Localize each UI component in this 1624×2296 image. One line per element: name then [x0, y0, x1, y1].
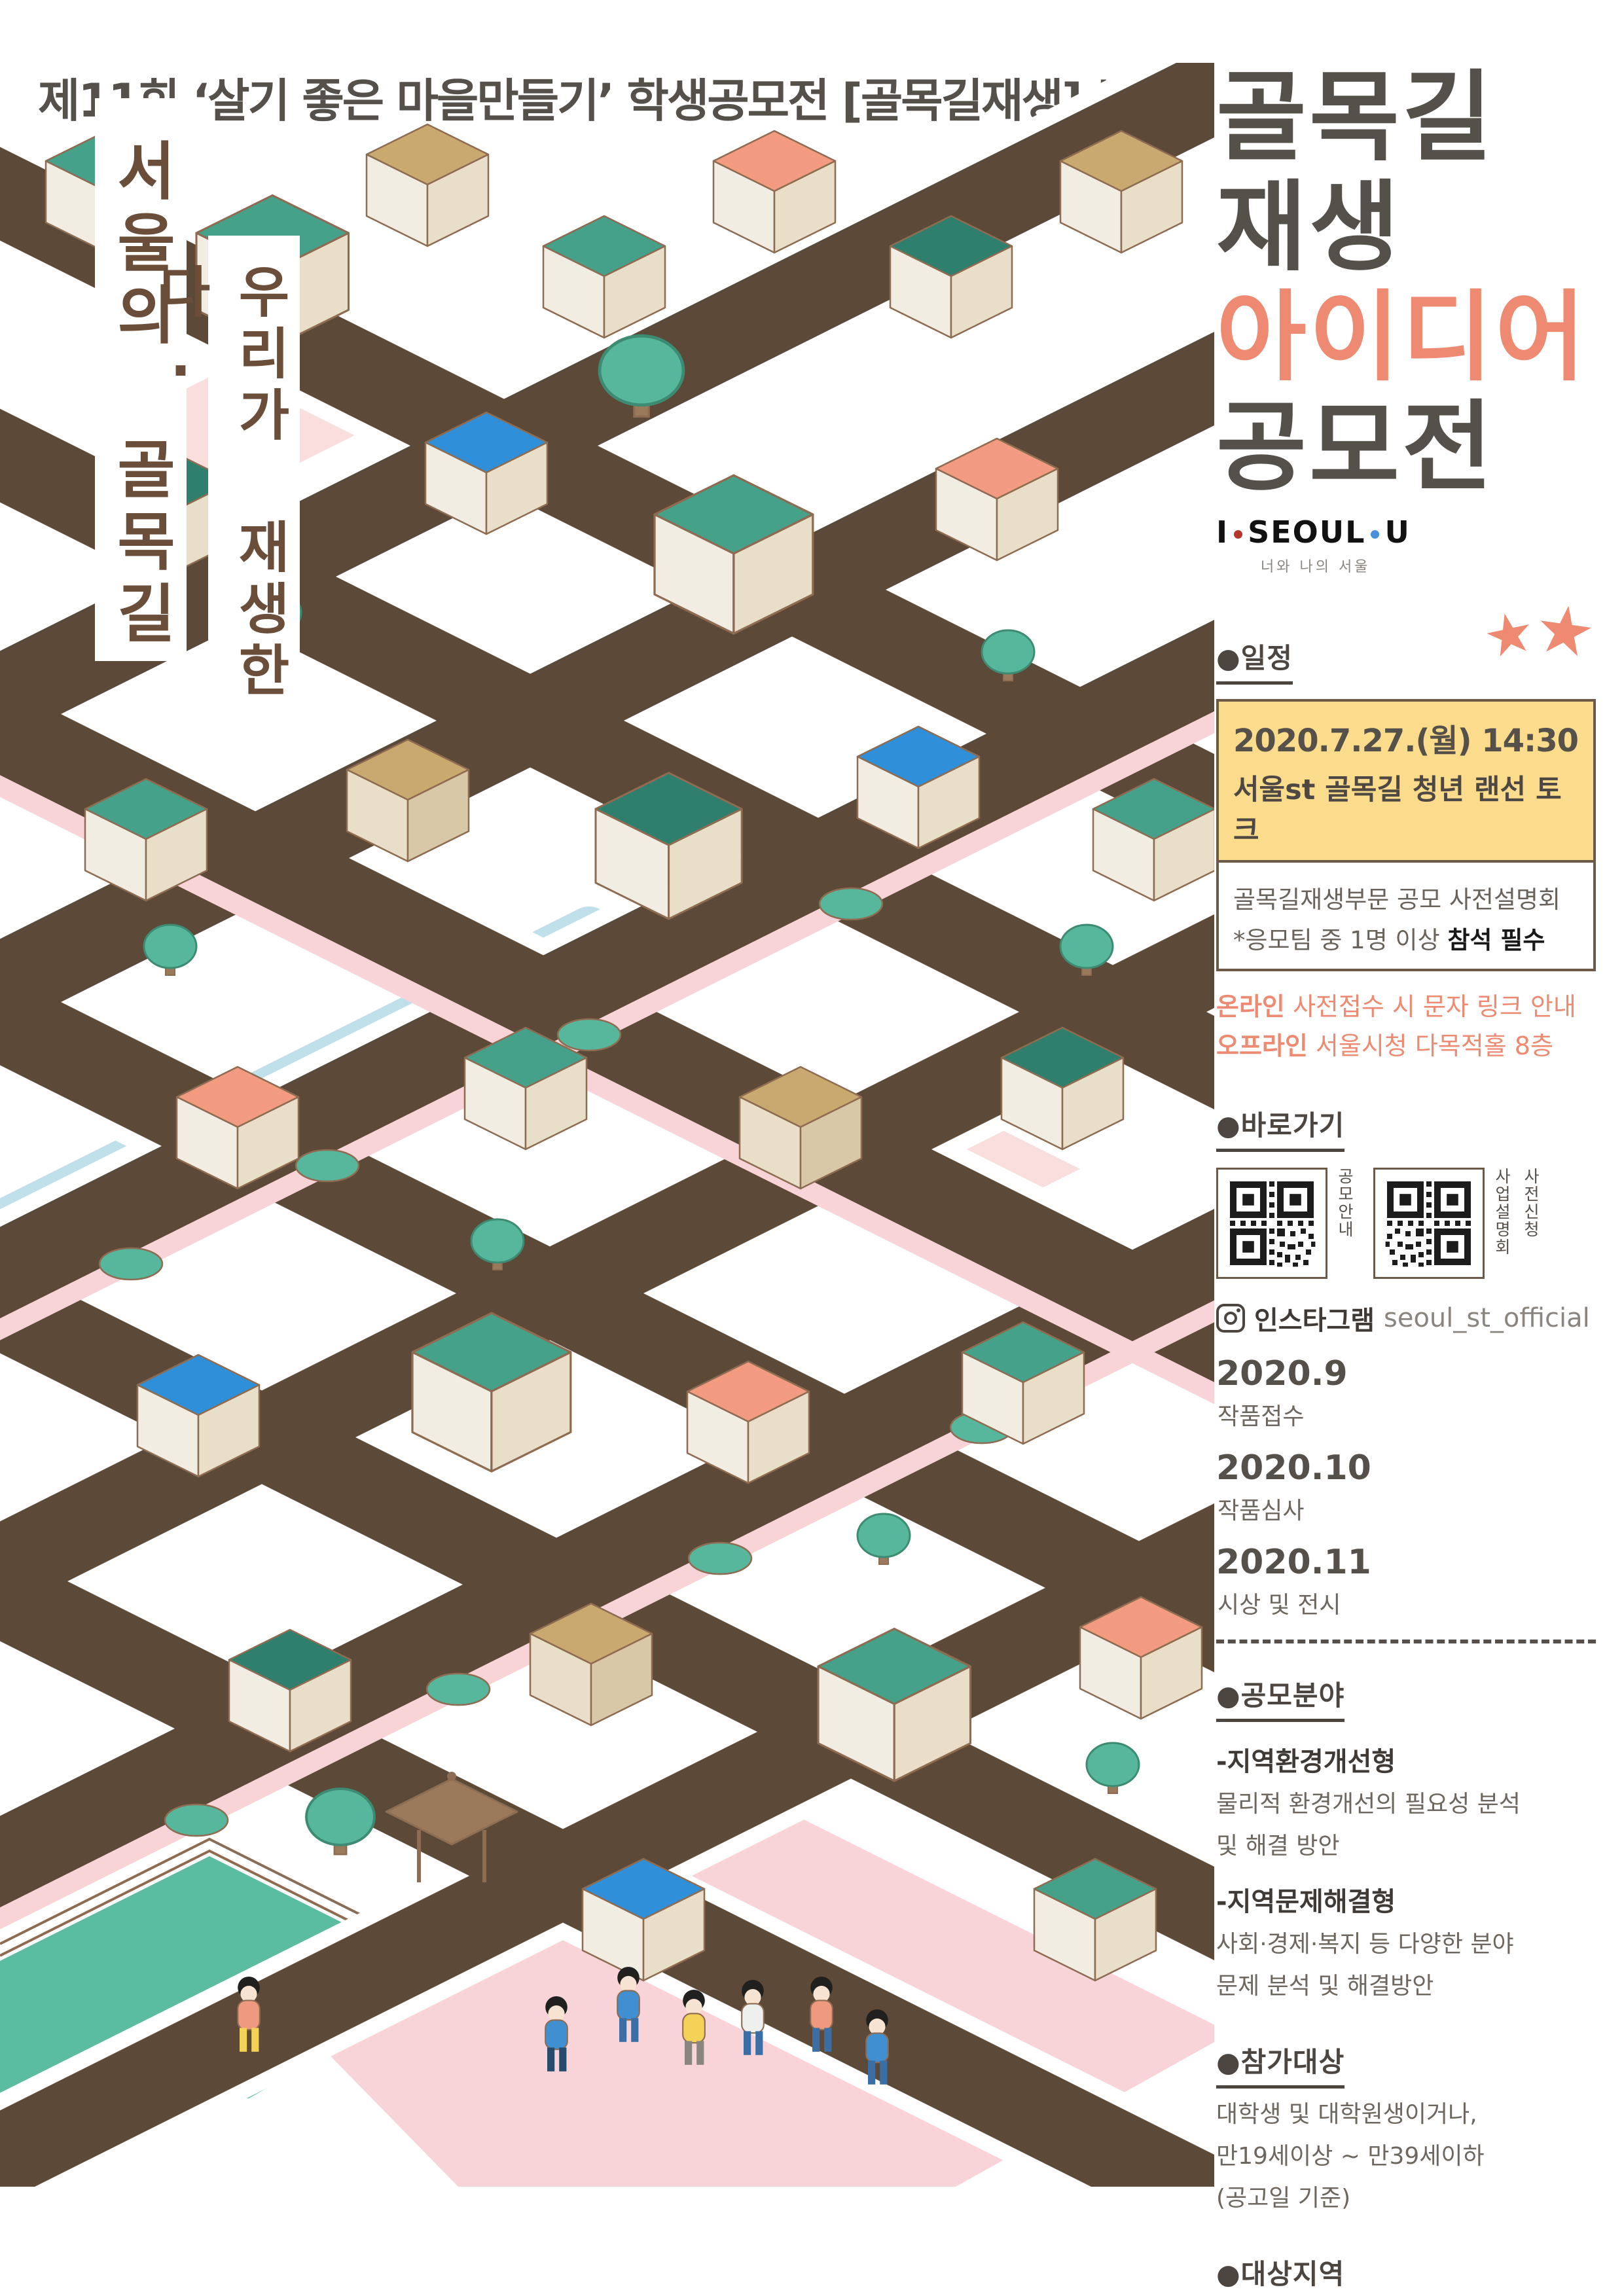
- category-1-title: -지역환경개선형: [1216, 1740, 1596, 1778]
- instagram-icon: [1216, 1304, 1245, 1333]
- timeline-item: 2020.11 시상 및 전시: [1216, 1543, 1596, 1620]
- instagram-row[interactable]: 인스타그램 seoul_st_official: [1216, 1299, 1596, 1337]
- schedule-access-info: 온라인 사전접수 시 문자 링크 안내 오프라인 서울시청 다목적홀 8층: [1216, 987, 1596, 1066]
- schedule-date: 2020.7.27.(월) 14:30: [1233, 715, 1579, 761]
- timeline-label: 시상 및 전시: [1218, 1586, 1596, 1620]
- banner-secondary-text: 우리가 재생한다.: [208, 263, 300, 779]
- qr-code-announcement: [1216, 1168, 1327, 1279]
- note-prefix: *응모팀 중 1명 이상: [1233, 926, 1447, 954]
- timeline-label: 작품심사: [1218, 1492, 1596, 1526]
- qr-label-briefing-1: 사업설명회: [1490, 1168, 1513, 1282]
- logo-red-dot-icon: [1234, 530, 1242, 539]
- title-line-4: 공모전: [1216, 393, 1596, 503]
- schedule-note-line: 골목길재생부문 공모 사전설명회: [1233, 880, 1579, 915]
- vertical-banner-secondary: 우리가 재생한다.: [208, 236, 300, 779]
- timeline-date: 2020.10: [1216, 1448, 1596, 1488]
- schedule-heading: ●일정: [1216, 636, 1293, 685]
- banner-primary-text: 서울의 골목길: [95, 138, 187, 653]
- section-schedule: ●일정 ★★ 2020.7.27.(월) 14:30 서울st 골목길 청년 랜…: [1216, 636, 1596, 1066]
- category-1-desc: 물리적 환경개선의 필요성 분석: [1216, 1789, 1596, 1820]
- timeline-date: 2020.11: [1216, 1543, 1596, 1582]
- section-eligibility: ●참가대상 대학생 및 대학원생이거나, 만19세이상 ~ 만39세이하 (공고…: [1216, 2040, 1596, 2214]
- timeline-label: 작품접수: [1218, 1397, 1596, 1431]
- offline-label: 오프라인: [1216, 1031, 1308, 1060]
- logo-i: I: [1216, 514, 1229, 550]
- eligibility-line: 대학생 및 대학원생이거나,: [1216, 2099, 1596, 2130]
- timeline-item: 2020.9 작품접수: [1216, 1354, 1596, 1431]
- offline-text: 서울시청 다목적홀 8층: [1308, 1031, 1553, 1060]
- qr-label-announcement: 공모안내: [1333, 1168, 1356, 1282]
- online-info: 온라인 사전접수 시 문자 링크 안내: [1216, 987, 1596, 1026]
- note-bold: 참석 필수: [1447, 926, 1545, 954]
- title-line-2: 재생: [1216, 173, 1596, 283]
- categories-heading: ●공모분야: [1216, 1674, 1344, 1722]
- category-2-desc: 문제 분석 및 해결방안: [1216, 1971, 1596, 2002]
- poster: 제11회 ‘살기 좋은 마을만들기’ 학생공모전 [골목길재생] 부문: [0, 0, 1624, 2296]
- qr-label-briefing-2: 사전신청: [1519, 1168, 1542, 1282]
- timeline-date: 2020.9: [1216, 1354, 1596, 1393]
- schedule-note: 골목길재생부문 공모 사전설명회 *응모팀 중 1명 이상 참석 필수: [1219, 860, 1593, 969]
- qr-item-briefing: 사업설명회 사전신청: [1373, 1168, 1542, 1282]
- logo-blue-dot-icon: [1371, 530, 1379, 539]
- category-2-desc: 사회·경제·복지 등 다양한 분야: [1216, 1929, 1596, 1960]
- qr-row: 공모안내 사업설명회 사전신청: [1216, 1168, 1596, 1282]
- section-categories: ●공모분야 -지역환경개선형 물리적 환경개선의 필요성 분석 및 해결 방안 …: [1216, 1674, 1596, 2002]
- instagram-handle: seoul_st_official: [1384, 1303, 1590, 1333]
- section-target-area: ●대상지역 서울 골목길재생 지역(25개소): [1216, 2252, 1596, 2296]
- village-illustration: 서울의 골목길 우리가 재생한다.: [0, 63, 1214, 2187]
- eligibility-heading: ●참가대상: [1216, 2040, 1344, 2089]
- qr-code-briefing: [1373, 1168, 1485, 1279]
- logo-row: I SEOUL U: [1216, 514, 1596, 550]
- sidebar: 골목길 재생 아이디어 공모전 I SEOUL U 너와 나의 서울 ●일정 ★…: [1216, 63, 1596, 2296]
- target-area-heading: ●대상지역: [1216, 2252, 1344, 2296]
- schedule-event-title: 서울st 골목길 청년 랜선 토크: [1233, 767, 1579, 848]
- shortcuts-heading: ●바로가기: [1216, 1103, 1344, 1152]
- schedule-box: 2020.7.27.(월) 14:30 서울st 골목길 청년 랜선 토크 골목…: [1216, 699, 1596, 971]
- schedule-highlight: 2020.7.27.(월) 14:30 서울st 골목길 청년 랜선 토크: [1219, 702, 1593, 860]
- star-icons: ★★: [1484, 598, 1595, 665]
- logo-tagline: 너와 나의 서울: [1261, 555, 1596, 576]
- online-text: 사전접수 시 문자 링크 안내: [1285, 992, 1576, 1021]
- title-line-1: 골목길: [1216, 63, 1596, 173]
- offline-info: 오프라인 서울시청 다목적홀 8층: [1216, 1026, 1596, 1066]
- star-icon: ★: [1530, 594, 1599, 669]
- section-shortcuts: ●바로가기: [1216, 1103, 1596, 1620]
- title-line-3: 아이디어: [1216, 283, 1596, 393]
- i-seoul-u-logo: I SEOUL U 너와 나의 서울: [1216, 514, 1596, 576]
- category-2-title: -지역문제해결형: [1216, 1880, 1596, 1918]
- category-1-desc: 및 해결 방안: [1216, 1831, 1596, 1862]
- online-label: 온라인: [1216, 992, 1285, 1021]
- divider: [1216, 1640, 1596, 1643]
- timeline: 2020.9 작품접수 2020.10 작품심사 2020.11 시상 및 전시: [1216, 1354, 1596, 1620]
- logo-seoul: SEOUL: [1248, 514, 1365, 550]
- timeline-item: 2020.10 작품심사: [1216, 1448, 1596, 1526]
- instagram-label: 인스타그램: [1254, 1299, 1375, 1337]
- schedule-note-line: *응모팀 중 1명 이상 참석 필수: [1233, 920, 1579, 956]
- contest-title: 골목길 재생 아이디어 공모전: [1216, 63, 1596, 503]
- logo-u: U: [1384, 514, 1410, 550]
- eligibility-line: (공고일 기준): [1216, 2183, 1596, 2214]
- qr-item-announcement: 공모안내: [1216, 1168, 1356, 1282]
- eligibility-line: 만19세이상 ~ 만39세이하: [1216, 2141, 1596, 2172]
